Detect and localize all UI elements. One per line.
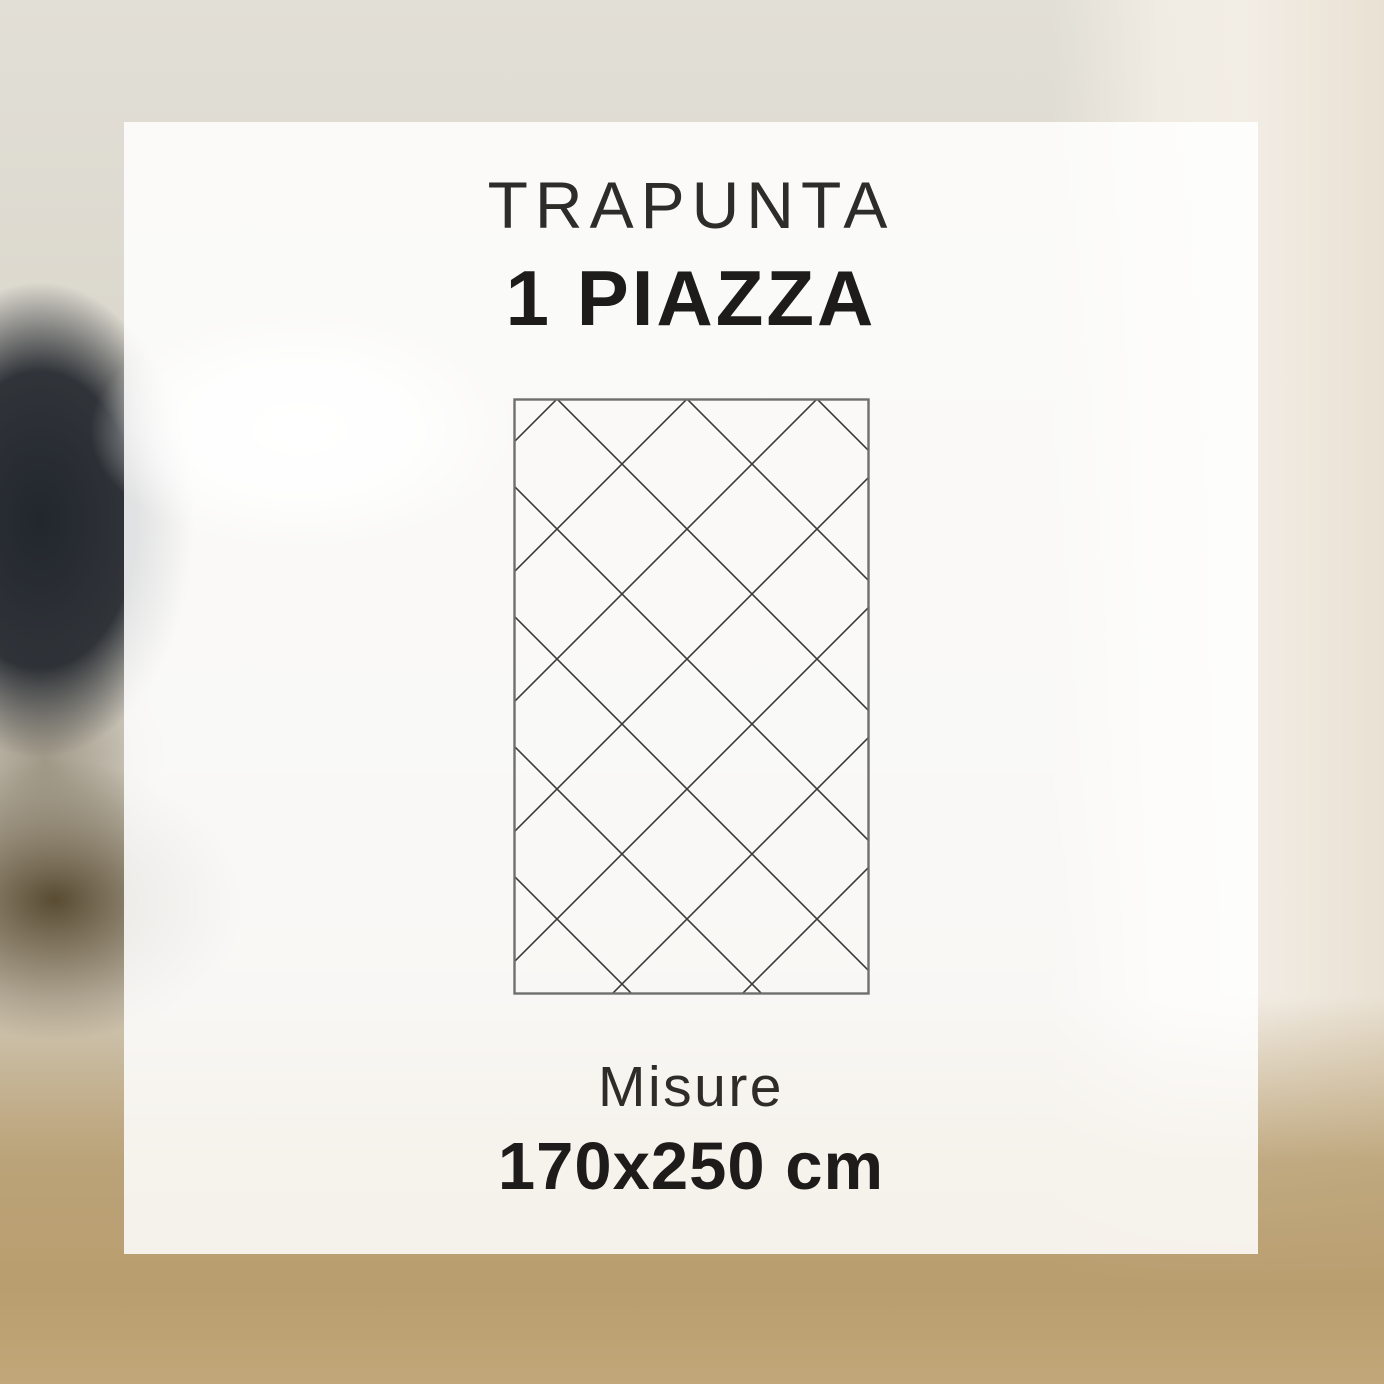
measure-value: 170x250 cm: [498, 1128, 884, 1205]
quilt-diagram: [513, 398, 870, 995]
product-card: TRAPUNTA 1 PIAZZA Misure 170x250 cm: [124, 122, 1258, 1254]
measure-label: Misure: [598, 1055, 784, 1121]
quilt-diamond-pattern-icon: [513, 398, 870, 995]
infographic-canvas: TRAPUNTA 1 PIAZZA Misure 170x250 cm: [0, 0, 1384, 1384]
product-size-name: 1 PIAZZA: [506, 254, 877, 344]
product-title: TRAPUNTA: [488, 168, 895, 244]
